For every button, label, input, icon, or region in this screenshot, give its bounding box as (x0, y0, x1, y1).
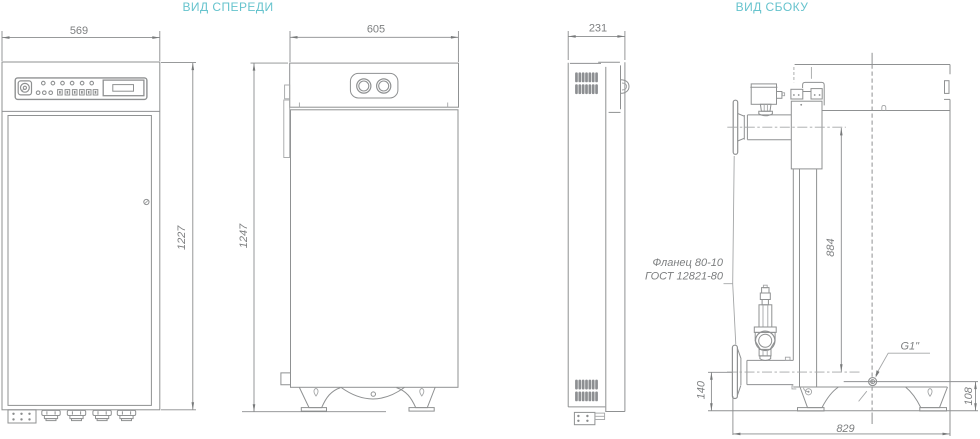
svg-text:829: 829 (836, 423, 854, 435)
svg-text:231: 231 (589, 23, 607, 35)
svg-text:ГОСТ 12821-80: ГОСТ 12821-80 (645, 271, 724, 283)
svg-text:G1": G1" (901, 341, 921, 353)
svg-text:605: 605 (367, 24, 385, 36)
svg-text:1227: 1227 (176, 225, 188, 250)
svg-text:140: 140 (696, 380, 708, 399)
svg-text:108: 108 (963, 386, 975, 405)
svg-text:ВИД СПЕРЕДИ: ВИД СПЕРЕДИ (182, 0, 273, 14)
svg-text:884: 884 (825, 238, 837, 256)
svg-text:ВИД СБОКУ: ВИД СБОКУ (736, 0, 809, 14)
svg-text:569: 569 (70, 25, 88, 37)
svg-text:Фланец 80-10: Фланец 80-10 (653, 257, 724, 269)
svg-text:1247: 1247 (238, 223, 250, 248)
